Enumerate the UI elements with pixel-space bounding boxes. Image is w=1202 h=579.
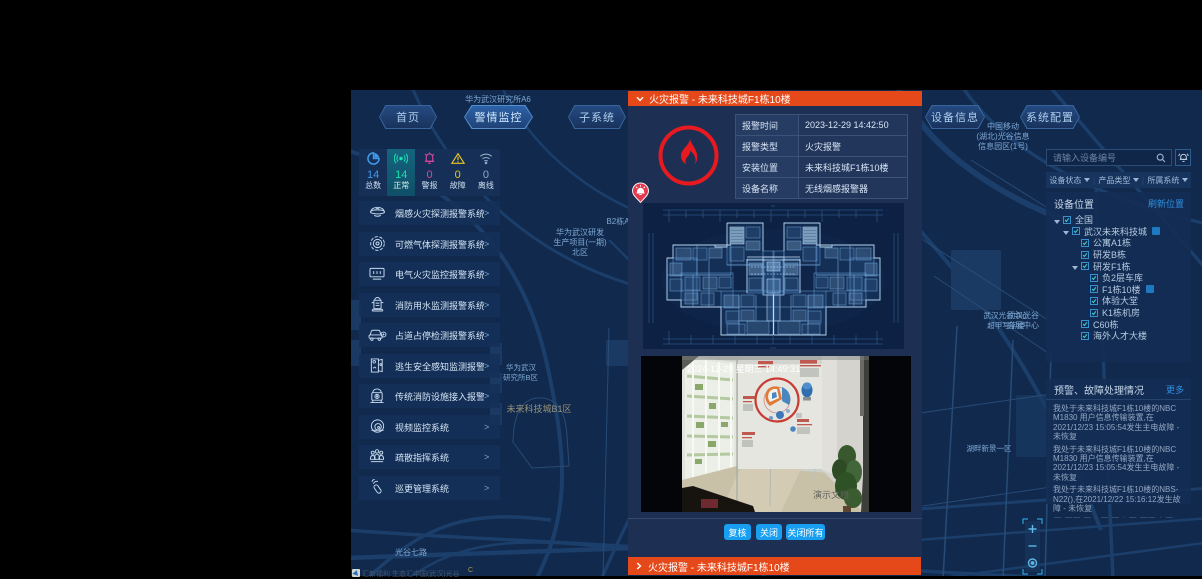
svg-text:华为武汉研发: 华为武汉研发 [556, 227, 604, 237]
svg-text:2024-12-29 星期三 14:49:31: 2024-12-29 星期三 14:49:31 [687, 364, 800, 374]
svg-text:未来科技城B1区: 未来科技城B1区 [506, 403, 571, 414]
svg-text:生产项目(一期): 生产项目(一期) [553, 237, 607, 247]
svg-text:演示文档: 演示文档 [813, 489, 849, 500]
svg-text:北区: 北区 [572, 248, 588, 257]
svg-text:光谷七路: 光谷七路 [395, 547, 427, 557]
svg-text:超甲写字楼: 超甲写字楼 [987, 320, 1025, 330]
svg-text:B2栋A: B2栋A [606, 216, 630, 226]
svg-text:湖畔新景一区: 湖畔新景一区 [967, 443, 1012, 453]
svg-text:中国移动: 中国移动 [987, 121, 1019, 131]
svg-text:武汉光谷中心: 武汉光谷中心 [984, 310, 1029, 320]
svg-text:华为武汉: 华为武汉 [506, 362, 536, 372]
svg-text:(湖北)光谷信息: (湖北)光谷信息 [976, 131, 1029, 141]
svg-text:研究所B区: 研究所B区 [503, 372, 539, 382]
svg-text:信息园区(1号): 信息园区(1号) [978, 141, 1028, 151]
svg-text:华为武汉研究所A6: 华为武汉研究所A6 [465, 94, 531, 104]
